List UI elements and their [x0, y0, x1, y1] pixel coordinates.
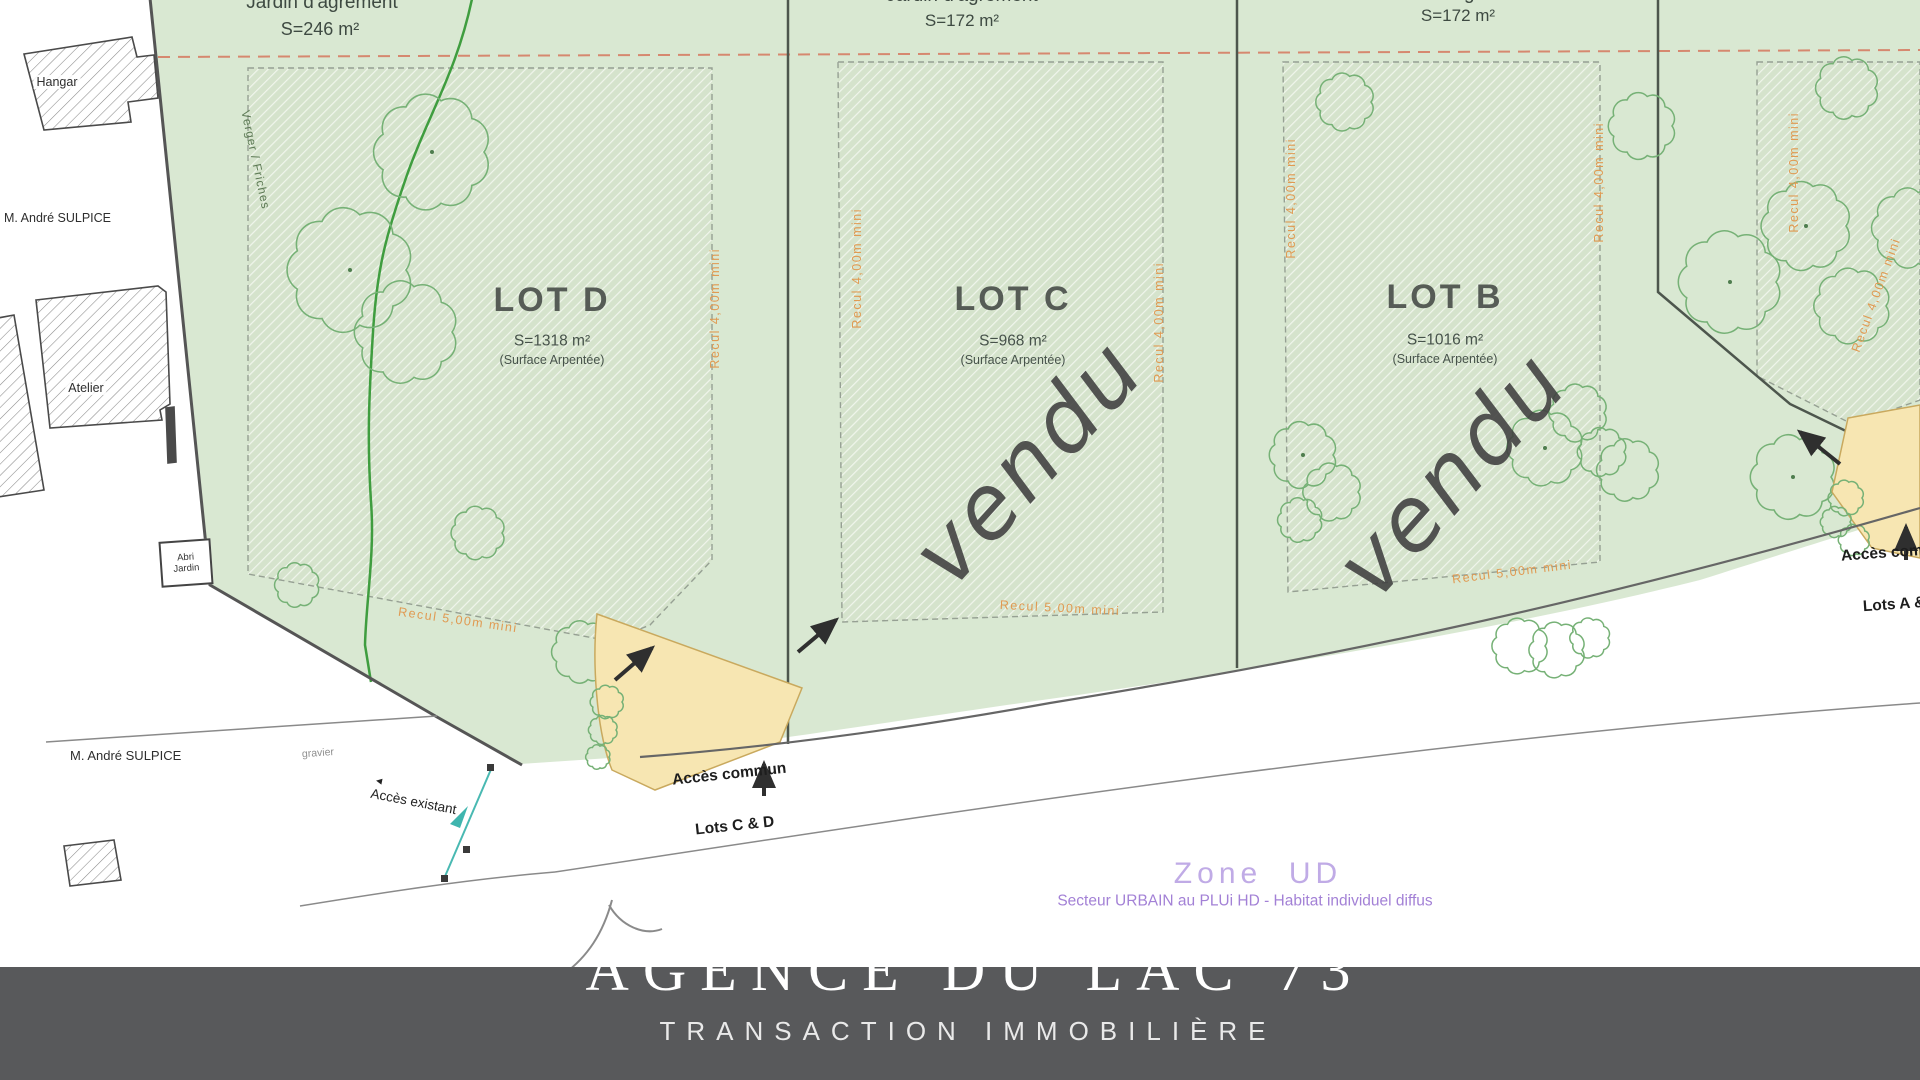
southwest-building [64, 840, 121, 886]
access-common-cd-line2: Lots C & D [677, 811, 793, 840]
lot-d-hatch [248, 68, 712, 641]
lot-d-surface: S=1318 m² [514, 332, 590, 349]
owner-north-label: M. André SULPICE [4, 211, 111, 225]
lot-c-title: LOT C [955, 280, 1072, 318]
agency-title: AGENCE DU LAC 73 [586, 936, 1365, 1005]
west-building [0, 315, 44, 497]
site-plan-page: Jardin d'agrément S=246 m² Jardin d'agré… [0, 0, 1920, 1080]
access-existing-text: Accès existant [369, 786, 457, 817]
access-common-ab-line2: Lots A & B [1844, 591, 1920, 616]
zone-title: Zone UD [1174, 857, 1342, 891]
recul-lot-a-west: Recul 4,00m mini [1787, 112, 1801, 233]
zone-subtitle: Secteur URBAIN au PLUi HD - Habitat indi… [1057, 892, 1432, 909]
garden-b-surface: S=172 m² [1421, 6, 1495, 25]
recul-lot-d-east: Recul 4,00m mini [708, 248, 722, 369]
lot-d-title: LOT D [494, 281, 611, 319]
lot-d-note: (Surface Arpentée) [500, 353, 605, 367]
owner-south-label: M. André SULPICE [70, 749, 181, 764]
recul-lot-c-west: Recul 4,00m mini [850, 208, 864, 329]
agency-subtitle: TRANSACTION IMMOBILIÈRE [659, 1016, 1276, 1047]
hangar-label: Hangar [34, 75, 81, 89]
abri-jardin-line2: Jardin [173, 562, 200, 575]
lot-b-surface: S=1016 m² [1407, 331, 1483, 348]
garden-d-surface: S=246 m² [281, 19, 360, 39]
garden-c-label: Jardin d'agrément [886, 0, 1038, 6]
access-common-ab-line1: Accès commun [1840, 539, 1920, 564]
access-common-cd-label: Accès commun Lots C & D [668, 725, 796, 875]
recul-lot-c-east: Recul 4,00m mini [1152, 262, 1166, 383]
lot-c-surface: S=968 m² [979, 332, 1047, 349]
gravier-label: gravier [302, 747, 335, 761]
recul-lot-b-east: Recul 4,00m mini [1592, 122, 1606, 243]
garden-b-label: Jardin d'agrément [1382, 0, 1534, 4]
abri-jardin-box: Abri Jardin [158, 538, 213, 588]
garden-c-surface: S=172 m² [925, 11, 999, 30]
wall-stub [166, 407, 176, 463]
garden-d-label: Jardin d'agrément [246, 0, 398, 13]
lot-b-title: LOT B [1387, 278, 1504, 316]
recul-lot-b-west: Recul 4,00m mini [1284, 138, 1298, 259]
road-edges [46, 703, 1920, 906]
access-common-cd-line1: Accès commun [671, 759, 787, 788]
atelier-label: Atelier [65, 381, 106, 395]
atelier-building [36, 286, 170, 428]
access-common-ab-label: Accès commun Lots A & B [1838, 505, 1920, 652]
